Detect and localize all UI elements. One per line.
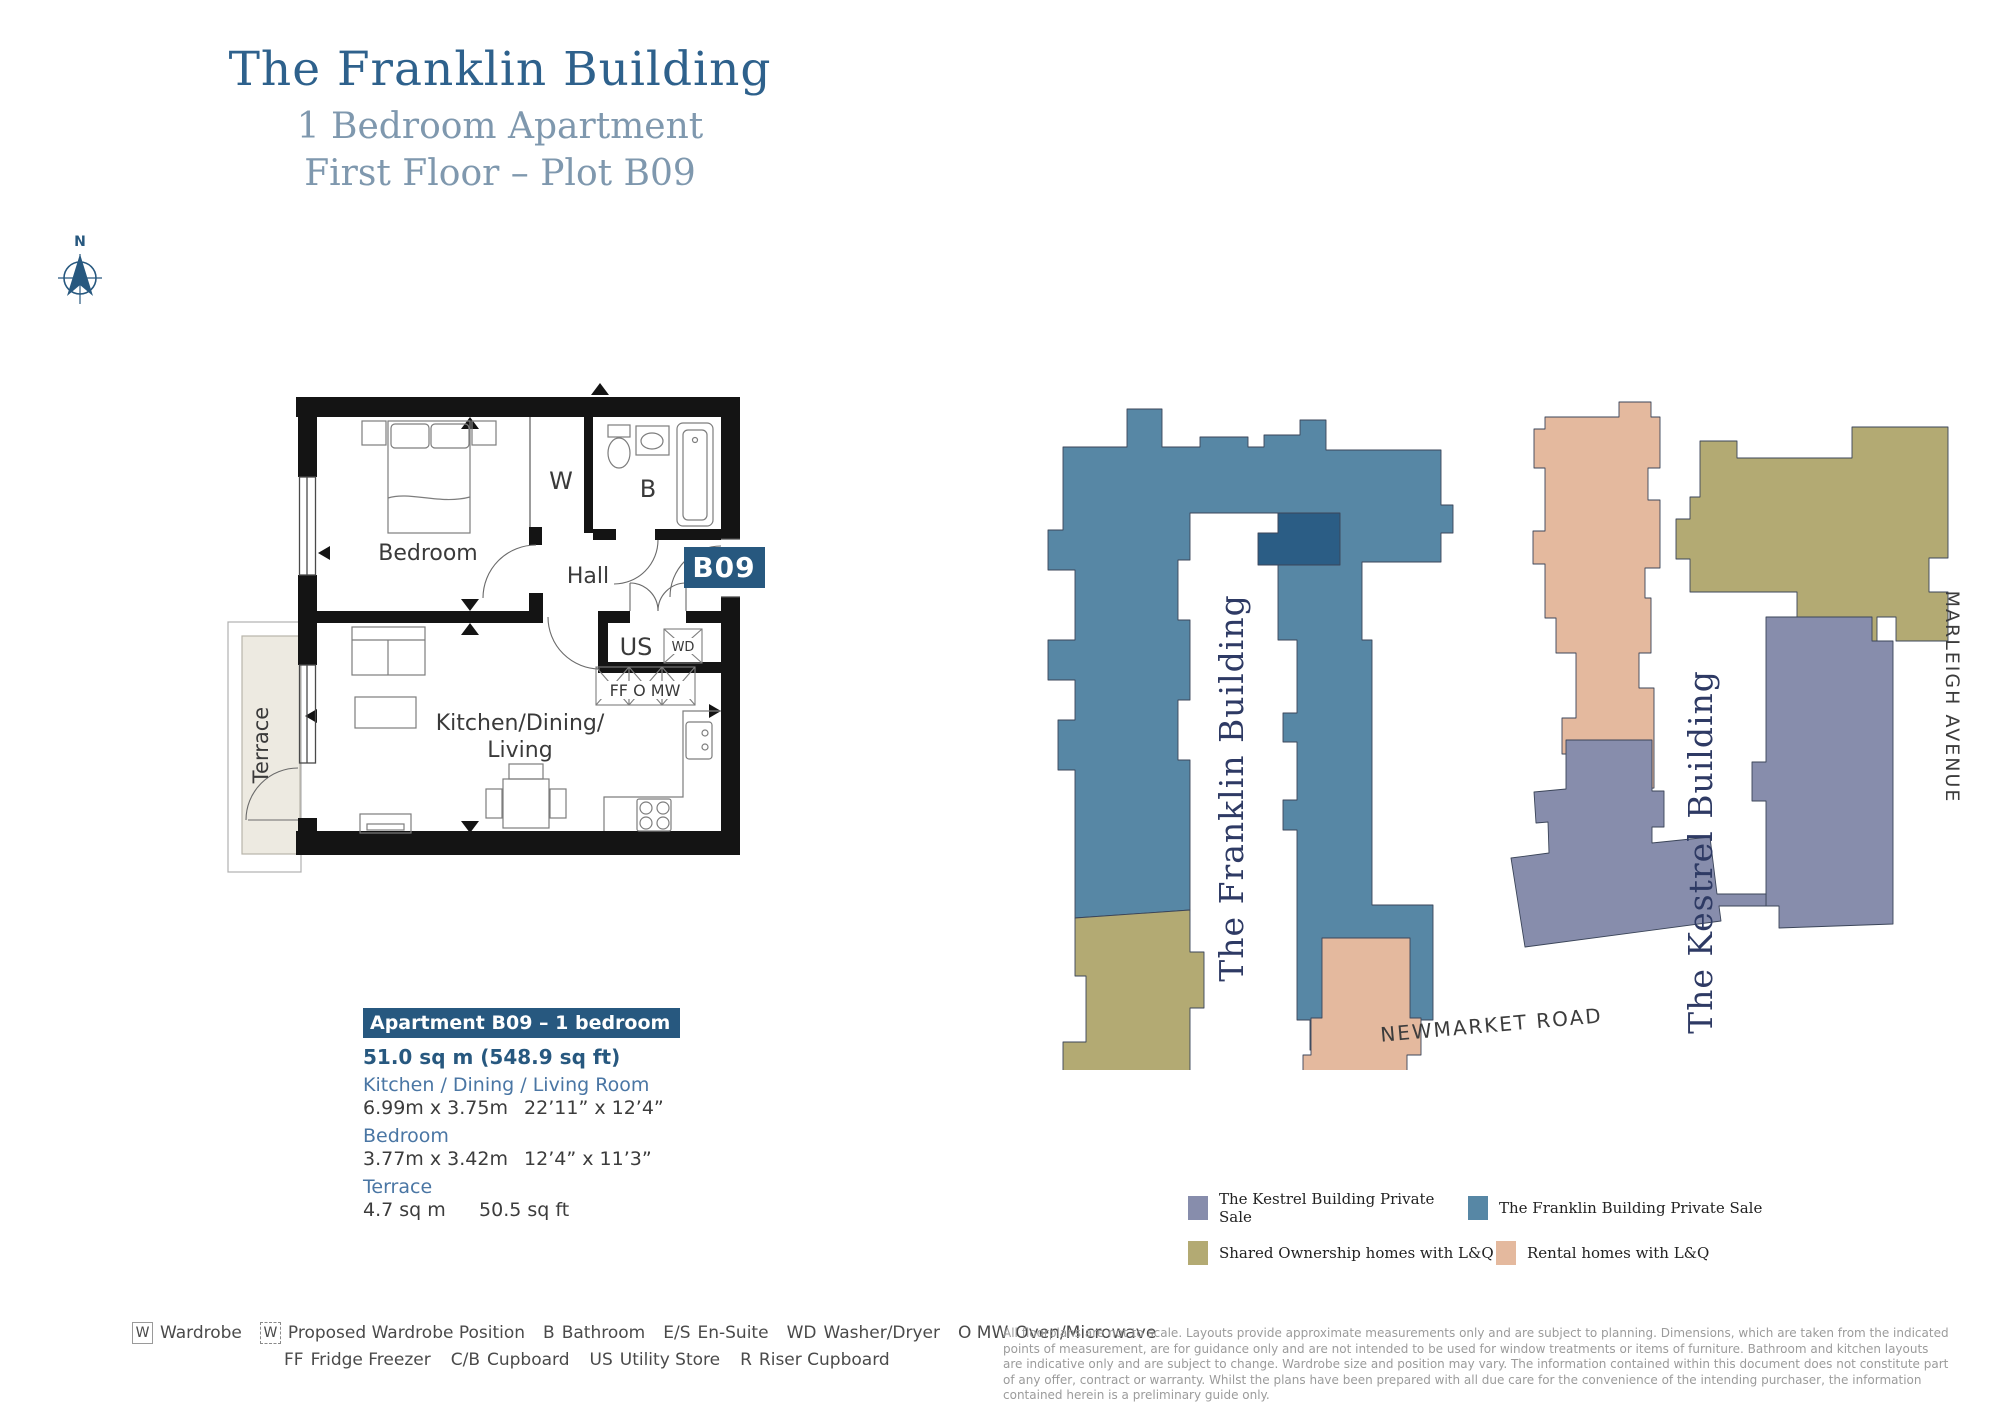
key-abbr: E/S xyxy=(663,1323,690,1343)
key-item-fridge-freezer: FF Fridge Freezer xyxy=(284,1350,431,1370)
key-item-cupboard: C/B Cupboard xyxy=(451,1350,570,1370)
walls xyxy=(296,397,740,855)
legend-item-rental: Rental homes with L&Q xyxy=(1496,1241,1709,1265)
wardrobe-label: W xyxy=(549,467,573,495)
key-item-bathroom: B Bathroom xyxy=(543,1323,645,1343)
room-dimensions: 6.99m x 3.75m 22’11” x 12’4” xyxy=(363,1097,693,1120)
kitchen-label-line1: Kitchen/Dining/ xyxy=(436,711,605,736)
room-dimensions-metric: 3.77m x 3.42m xyxy=(363,1148,518,1171)
room-dimensions-imperial: 12’4” x 11’3” xyxy=(524,1148,652,1170)
kestrel-building-shape-right xyxy=(1752,617,1893,928)
compass-north-icon: N xyxy=(48,230,112,314)
room-name: Kitchen / Dining / Living Room xyxy=(363,1074,693,1097)
apartment-info: Apartment B09 – 1 bedroom 51.0 sq m (548… xyxy=(363,1008,693,1222)
key-label: Fridge Freezer xyxy=(311,1350,431,1370)
kestrel-building-label: The Kestrel Building xyxy=(1681,670,1720,1034)
room-dimensions: 4.7 sq m 50.5 sq ft xyxy=(363,1199,693,1222)
franklin-color-swatch xyxy=(1468,1196,1488,1220)
key-abbr: WD xyxy=(787,1323,817,1343)
franklin-plot-highlight-shape xyxy=(1258,513,1340,565)
room-dimensions-imperial: 50.5 sq ft xyxy=(479,1199,569,1221)
legend-label: The Franklin Building Private Sale xyxy=(1499,1199,1762,1217)
room-dimensions-imperial: 22’11” x 12’4” xyxy=(524,1097,664,1119)
key-item-riser-cupboard: R Riser Cupboard xyxy=(740,1350,890,1370)
apartment-info-header: Apartment B09 – 1 bedroom xyxy=(363,1008,680,1038)
key-abbr: C/B xyxy=(451,1350,480,1370)
title-block: The Franklin Building 1 Bedroom Apartmen… xyxy=(150,44,850,194)
legend-item-franklin: The Franklin Building Private Sale xyxy=(1468,1196,1762,1220)
proposed-wardrobe-box-icon: W xyxy=(260,1322,281,1344)
key-label: Cupboard xyxy=(487,1350,570,1370)
key-item-utility-store: US Utility Store xyxy=(590,1350,721,1370)
site-plan-legend: The Kestrel Building Private Sale The Fr… xyxy=(1188,1190,1762,1265)
wardrobe-box-icon: W xyxy=(132,1322,153,1344)
legend-item-shared-ownership: Shared Ownership homes with L&Q xyxy=(1188,1241,1496,1265)
site-plan: The Franklin Building The Kestrel Buildi… xyxy=(990,390,1980,1070)
page-title: The Franklin Building xyxy=(150,44,850,97)
bathroom-label: B xyxy=(640,475,656,503)
kestrel-building-shape-left xyxy=(1511,740,1766,947)
apartment-total-area: 51.0 sq m (548.9 sq ft) xyxy=(363,1045,693,1069)
franklin-building-label: The Franklin Building xyxy=(1212,594,1251,981)
rental-color-swatch xyxy=(1496,1241,1516,1265)
plot-badge: B09 xyxy=(684,547,765,588)
room-dimensions: 3.77m x 3.42m 12’4” x 11’3” xyxy=(363,1148,693,1171)
plot-badge-label: B09 xyxy=(692,551,755,584)
kestrel-shared-ownership-shape xyxy=(1676,427,1948,641)
key-abbr: FF xyxy=(284,1350,304,1370)
floor-plan: WD FF O MW Bedroom W B Hall US Kitchen/D… xyxy=(220,290,780,880)
room-dimensions-metric: 6.99m x 3.75m xyxy=(363,1097,518,1120)
key-item-washer-dryer: WD Washer/Dryer xyxy=(787,1323,940,1343)
key-abbr: O MW xyxy=(958,1323,1008,1343)
washer-dryer-label: WD xyxy=(672,640,695,655)
legend-label: Rental homes with L&Q xyxy=(1527,1244,1709,1262)
appliances-label: FF O MW xyxy=(610,681,681,700)
room-name: Terrace xyxy=(363,1176,693,1199)
key-label: Riser Cupboard xyxy=(759,1350,890,1370)
key-item-wardrobe: W Wardrobe xyxy=(132,1322,242,1344)
legend-label: The Kestrel Building Private Sale xyxy=(1219,1190,1468,1226)
floorplan-brochure-page: The Franklin Building 1 Bedroom Apartmen… xyxy=(0,0,2000,1415)
franklin-shared-ownership-shape xyxy=(1063,910,1204,1070)
kestrel-rental-shape xyxy=(1533,402,1660,795)
legend-item-kestrel: The Kestrel Building Private Sale xyxy=(1188,1190,1468,1226)
hall-label: Hall xyxy=(567,564,609,589)
key-label: Proposed Wardrobe Position xyxy=(288,1323,525,1343)
key-abbr: US xyxy=(590,1350,613,1370)
key-abbr: R xyxy=(740,1350,752,1370)
shared-ownership-color-swatch xyxy=(1188,1241,1208,1265)
key-label: Wardrobe xyxy=(160,1323,242,1343)
disclaimer-text: All floorplans are not to scale. Layouts… xyxy=(1003,1326,1949,1404)
furniture xyxy=(352,421,721,833)
key-label: En-Suite xyxy=(697,1323,768,1343)
room-name: Bedroom xyxy=(363,1125,693,1148)
key-item-ensuite: E/S En-Suite xyxy=(663,1323,768,1343)
marleigh-avenue-label: MARLEIGH AVENUE xyxy=(1941,591,1963,804)
key-label: Utility Store xyxy=(620,1350,720,1370)
page-subtitle-type: 1 Bedroom Apartment xyxy=(150,107,850,147)
page-subtitle-plot: First Floor – Plot B09 xyxy=(150,154,850,194)
terrace-label: Terrace xyxy=(249,707,273,784)
key-label: Bathroom xyxy=(562,1323,646,1343)
utility-store-label: US xyxy=(620,633,653,661)
key-item-proposed-wardrobe: W Proposed Wardrobe Position xyxy=(260,1322,525,1344)
key-abbr: B xyxy=(543,1323,555,1343)
kitchen-label-line2: Living xyxy=(487,738,552,763)
legend-label: Shared Ownership homes with L&Q xyxy=(1219,1244,1494,1262)
compass-n-label: N xyxy=(74,234,86,250)
bedroom-label: Bedroom xyxy=(378,541,478,566)
key-label: Washer/Dryer xyxy=(823,1323,940,1343)
kestrel-color-swatch xyxy=(1188,1196,1208,1220)
room-dimensions-metric: 4.7 sq m xyxy=(363,1199,473,1222)
